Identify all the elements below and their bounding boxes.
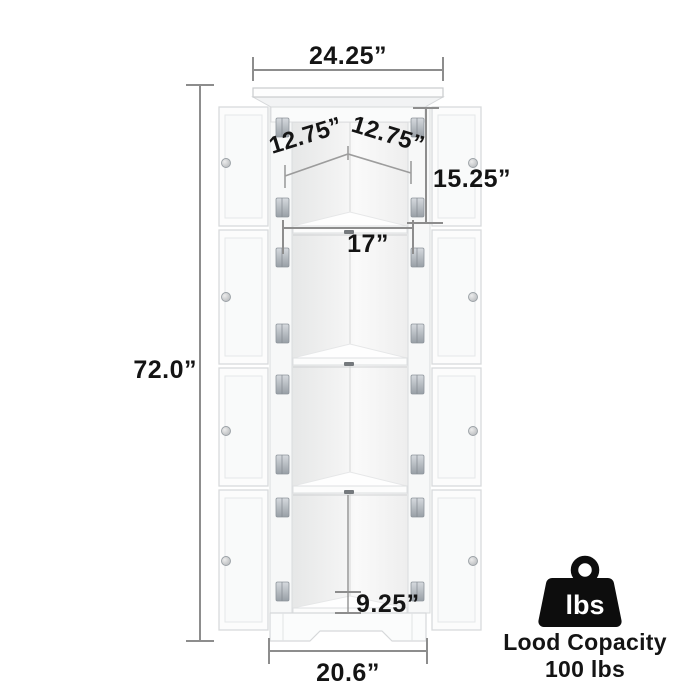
left-door-2 xyxy=(219,230,268,364)
door-catch xyxy=(344,362,354,366)
dimension-label: 9.25” xyxy=(356,590,420,618)
door-knob xyxy=(222,427,231,436)
crown-top-board xyxy=(253,88,443,97)
hinge xyxy=(411,375,424,394)
door-knob xyxy=(469,293,478,302)
cabinet-interior xyxy=(292,109,408,615)
cabinet-frame-left xyxy=(270,107,292,613)
load-capacity-line2: 100 lbs xyxy=(545,656,625,682)
load-capacity-line1: Lood Copacity xyxy=(503,629,667,655)
door-inner-panel xyxy=(438,376,475,478)
right-door-3 xyxy=(432,368,481,486)
left-door-4 xyxy=(219,490,268,630)
dimension-bottom-width: 20.6” xyxy=(269,639,427,687)
hinge xyxy=(276,498,289,517)
door-knob xyxy=(222,159,231,168)
dimension-label: 72.0” xyxy=(133,356,197,384)
load-capacity-badge: lbs Lood Copacity 100 lbs xyxy=(503,560,667,683)
door-inner-panel xyxy=(225,376,262,478)
hinge xyxy=(411,324,424,343)
product-dimension-diagram: 24.25” 12.75” 12.75” 15.25” 17” 72.0” 9.… xyxy=(0,0,700,700)
hinge xyxy=(276,455,289,474)
hinge xyxy=(276,582,289,601)
door-knob xyxy=(222,557,231,566)
hinge xyxy=(276,198,289,217)
dimension-label: 24.25” xyxy=(309,42,387,70)
left-doors xyxy=(219,107,268,630)
corner-cabinet-diagram: 24.25” 12.75” 12.75” 15.25” 17” 72.0” 9.… xyxy=(0,0,700,700)
door-knob xyxy=(222,293,231,302)
door-inner-panel xyxy=(225,115,262,218)
dimension-overall-height: 72.0” xyxy=(133,85,213,641)
door-knob xyxy=(469,427,478,436)
left-door-3 xyxy=(219,368,268,486)
hinge xyxy=(411,198,424,217)
hinge xyxy=(276,324,289,343)
hinge xyxy=(411,455,424,474)
dimension-top-width: 24.25” xyxy=(253,42,443,80)
door-knob xyxy=(469,557,478,566)
dimension-label: 20.6” xyxy=(316,659,380,687)
right-door-4 xyxy=(432,490,481,630)
dimension-label: 15.25” xyxy=(433,165,511,193)
door-catch xyxy=(344,490,354,494)
weight-icon-label: lbs xyxy=(565,590,604,620)
hinge xyxy=(411,498,424,517)
left-door-1 xyxy=(219,107,268,226)
right-door-2 xyxy=(432,230,481,364)
weight-icon: lbs xyxy=(538,560,621,628)
crown-molding xyxy=(253,97,443,107)
weight-icon-handle xyxy=(575,560,596,581)
hinge xyxy=(276,375,289,394)
dimension-label: 17” xyxy=(347,230,389,258)
top-rail xyxy=(271,107,425,122)
